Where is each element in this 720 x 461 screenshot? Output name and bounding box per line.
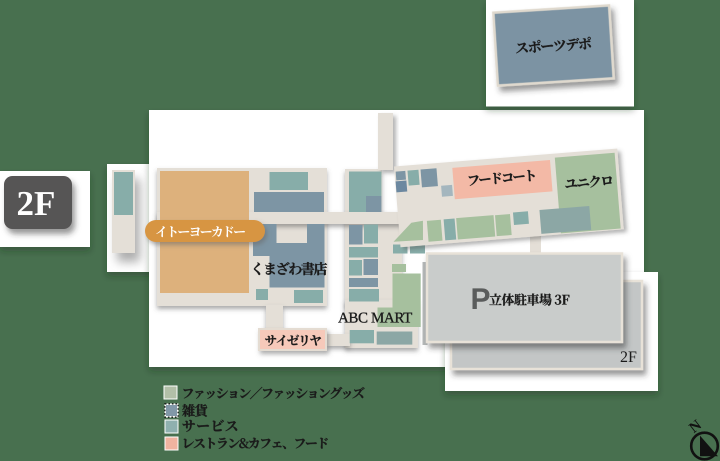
svg-text:ABC MART: ABC MART: [338, 311, 412, 327]
svg-text:2F: 2F: [620, 349, 637, 366]
svg-text:2F: 2F: [17, 184, 56, 223]
svg-text:P: P: [471, 283, 491, 316]
